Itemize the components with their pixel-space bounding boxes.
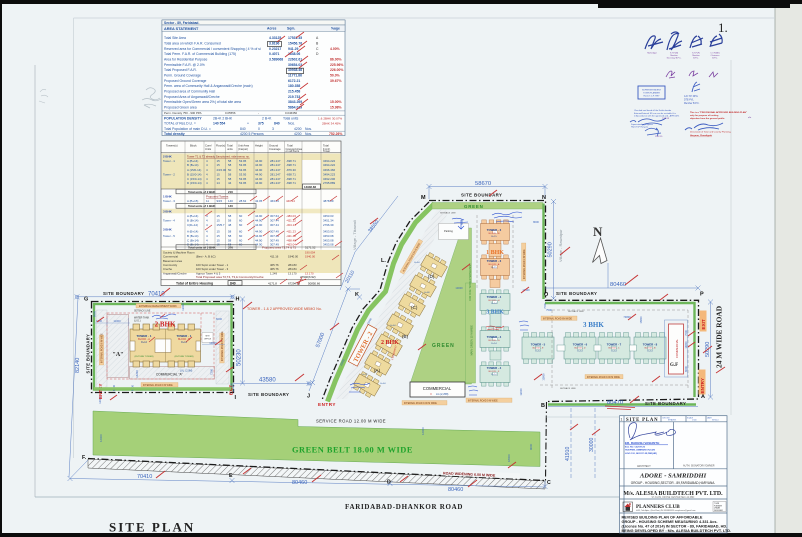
svg-text:1 BHK: 1 BHK	[163, 195, 173, 199]
svg-text:0.046350: 0.046350	[285, 111, 297, 115]
svg-text:Total of Entire Housing: Total of Entire Housing	[176, 281, 213, 285]
svg-text:3453.08: 3453.08	[323, 234, 334, 238]
svg-text:Total units of 2 BHK: Total units of 2 BHK	[188, 190, 216, 194]
svg-text:15: 15	[217, 177, 221, 181]
svg-text:6172.21: 6172.21	[288, 79, 300, 83]
svg-text:TOWER - 3: TOWER - 3	[487, 259, 502, 263]
svg-text:TOWER - 4: TOWER - 4	[487, 366, 502, 370]
svg-text:Floor(s): Floor(s)	[216, 144, 225, 148]
svg-text:53.95: 53.95	[239, 181, 247, 185]
svg-text:0: 0	[258, 127, 260, 131]
svg-text:D+14: D+14	[611, 350, 617, 352]
svg-text:(Besi - A, B &C): (Besi - A, B &C)	[196, 255, 216, 259]
svg-text:82140: 82140	[75, 358, 81, 373]
svg-text:TOWER - 7: TOWER - 7	[607, 343, 622, 347]
svg-text:307.49: 307.49	[270, 230, 279, 234]
svg-text:58: 58	[228, 177, 232, 181]
svg-text:14902.82: 14902.82	[304, 185, 316, 189]
svg-text:44.90: 44.90	[255, 168, 263, 172]
svg-text:5171.52: 5171.52	[305, 246, 316, 250]
svg-text:58: 58	[228, 172, 232, 176]
svg-text:BLOCK - G: BLOCK - G	[488, 340, 499, 342]
svg-text:OFFICE: OFFICE	[204, 339, 212, 341]
svg-text:HQ D.T.C.P. HRY: HQ D.T.C.P. HRY	[643, 96, 660, 98]
svg-text:B.A. NO. CA/97/126: B.A. NO. CA/97/126	[625, 445, 646, 448]
svg-text:A (B+14): A (B+14)	[187, 159, 198, 163]
svg-text:2796.39: 2796.39	[323, 223, 334, 227]
svg-text:M/s. ALESIA BUILDTECH PVT. LTD: M/s. ALESIA BUILDTECH PVT. LTD.	[623, 491, 723, 497]
svg-text:13.170: 13.170	[288, 271, 297, 275]
svg-text:Checked and found all the Koth: Checked and found all the Kothis beside	[634, 109, 672, 112]
svg-text:58: 58	[228, 234, 232, 238]
svg-text:A (B+14): A (B+14)	[187, 230, 198, 234]
svg-text:B (B+14): B (B+14)	[187, 234, 199, 238]
svg-text:O: O	[544, 292, 549, 298]
svg-text:MAIN GREEN 15 M WIDE: MAIN GREEN 15 M WIDE	[470, 325, 474, 356]
svg-text:30938.46: 30938.46	[288, 68, 302, 72]
svg-text:44.90: 44.90	[255, 218, 263, 222]
svg-text:50.0%: 50.0%	[330, 74, 340, 78]
svg-text:SITE BOUNDARY: SITE BOUNDARY	[86, 334, 91, 374]
svg-text:D+14: D+14	[491, 303, 497, 305]
svg-text:Towers(s): Towers(s)	[166, 144, 178, 148]
svg-text:281.247: 281.247	[270, 172, 281, 176]
svg-text:3453.03: 3453.03	[323, 214, 334, 218]
svg-text:TOWER - 4: TOWER - 4	[487, 295, 502, 299]
svg-text:Anganwadi/Creche: Anganwadi/Creche	[163, 271, 187, 275]
svg-text:Proposed Ground Coverage: Proposed Ground Coverage	[164, 79, 207, 83]
svg-text:SITE BOUNDARY: SITE BOUNDARY	[248, 392, 289, 397]
svg-text:INTERNAL ROAD 6 M WIDE: INTERNAL ROAD 6 M WIDE	[221, 331, 224, 361]
svg-text:Perm. Density 750 - 900 PPA: Perm. Density 750 - 900 PPA	[164, 111, 202, 115]
svg-text:0.4071: 0.4071	[269, 52, 279, 56]
svg-text:752.26%: 752.26%	[329, 132, 342, 136]
svg-text:DTE-PVL: DTE-PVL	[684, 99, 694, 101]
svg-text:D+14: D+14	[647, 350, 653, 352]
svg-text:6000: 6000	[684, 366, 688, 372]
svg-text:Tower - 4: Tower - 4	[163, 218, 175, 222]
svg-text:281.247: 281.247	[270, 163, 281, 167]
svg-text:0.05556: 0.05556	[225, 111, 236, 115]
svg-text:53.95: 53.95	[239, 159, 247, 163]
svg-text:15800: 15800	[542, 373, 546, 381]
svg-text:9/15: 9/15	[217, 199, 223, 203]
svg-text:375: 375	[258, 122, 264, 126]
svg-text:-698.71: -698.71	[286, 163, 296, 167]
svg-text:DESIGNER: DESIGNER	[714, 510, 724, 512]
svg-text:objection from the general pub: objection from the general public	[690, 117, 725, 120]
svg-text:AUTH. SIGNATORY/OWNER: AUTH. SIGNATORY/OWNER	[683, 465, 715, 468]
svg-text:SERVICE ROAD 12.00 M WIDE: SERVICE ROAD 12.00 M WIDE	[316, 419, 386, 424]
svg-text:42.05: 42.05	[255, 199, 263, 203]
svg-text:58670: 58670	[475, 181, 491, 187]
svg-text:44.90: 44.90	[255, 234, 263, 238]
svg-text:G+12: G+12	[362, 374, 368, 376]
svg-text:BLOCK - B: BLOCK - B	[489, 233, 500, 235]
svg-text:Proposed Towers: Proposed Towers	[206, 195, 229, 199]
svg-text:B+15: B+15	[491, 236, 497, 238]
svg-text:17531.45: 17531.45	[288, 36, 302, 40]
svg-text:C(D+14): C(D+14)	[187, 223, 198, 227]
svg-text:B (B+14): B (B+14)	[187, 163, 199, 167]
svg-text:39.67%: 39.67%	[330, 79, 342, 83]
svg-text:60: 60	[239, 242, 243, 246]
svg-text:Acres: Acres	[267, 27, 277, 31]
svg-text:H.NO 132, SEC/CF-55,FBD(HR): H.NO 132, SEC/CF-55,FBD(HR)	[625, 453, 657, 455]
svg-text:COMMERCIAL: COMMERCIAL	[675, 339, 679, 358]
svg-text:60: 60	[239, 223, 243, 227]
svg-text:11000: 11000	[113, 319, 121, 323]
svg-text:2 B+K: 2 B+K	[262, 116, 272, 120]
svg-text:COMMERCIAL "A": COMMERCIAL "A"	[156, 373, 183, 377]
svg-text:80470: 80470	[607, 400, 623, 406]
svg-text:8000: 8000	[533, 220, 539, 224]
svg-text:FARIDABAD-DHANKOR ROAD: FARIDABAD-DHANKOR ROAD	[345, 503, 463, 511]
svg-text:4171.8: 4171.8	[268, 281, 277, 285]
svg-text:A (B+14): A (B+14)	[187, 214, 198, 218]
svg-text:3 BHK: 3 BHK	[486, 310, 504, 316]
svg-text:219.733: 219.733	[288, 95, 300, 99]
svg-text:SITE PLAN: SITE PLAN	[626, 418, 658, 423]
svg-text:SUPERINTENDENT: SUPERINTENDENT	[642, 90, 662, 92]
svg-text:Proposed area of Community Hal: Proposed area of Community Hall	[164, 90, 215, 94]
svg-text:+: +	[247, 122, 249, 126]
svg-text:B+15: B+15	[491, 267, 497, 269]
svg-text:2/15.00: 2/15.00	[217, 168, 227, 172]
svg-text:44.90: 44.90	[255, 181, 263, 185]
svg-text:14800: 14800	[684, 341, 688, 349]
svg-text:44.90: 44.90	[255, 214, 263, 218]
svg-text:58: 58	[228, 214, 232, 218]
svg-text:D+14: D+14	[577, 350, 583, 352]
svg-text:GREEN: GREEN	[464, 204, 484, 209]
svg-text:50230: 50230	[237, 349, 243, 366]
svg-text:Perm. Ground Coverage: Perm. Ground Coverage	[164, 74, 201, 78]
svg-text:3496.466: 3496.466	[323, 168, 335, 172]
svg-text:Member B.P.C.: Member B.P.C.	[684, 102, 700, 105]
svg-text:15800: 15800	[639, 316, 643, 324]
svg-text:AREA STATEMENT: AREA STATEMENT	[164, 27, 199, 31]
svg-text:44.90: 44.90	[255, 163, 263, 167]
svg-text:Village - Rawatpur: Village - Rawatpur	[558, 229, 563, 262]
svg-text:307.64: 307.64	[270, 214, 279, 218]
svg-text:-879.30: -879.30	[286, 168, 296, 172]
svg-text:12000: 12000	[519, 388, 523, 396]
svg-text:Perm. area of Community Hall &: Perm. area of Community Hall & Anganwadi…	[164, 84, 253, 88]
svg-text:INTERNAL ROAD 6 M WIDE: INTERNAL ROAD 6 M WIDE	[101, 333, 104, 363]
svg-text:60: 60	[239, 234, 243, 238]
svg-text:11771.86: 11771.86	[288, 74, 302, 78]
svg-text:12000: 12000	[421, 427, 425, 435]
svg-text:840: 840	[240, 127, 246, 131]
svg-text:B.P.C.: B.P.C.	[693, 58, 699, 60]
svg-text:POPULATION DENSITY: POPULATION DENSITY	[164, 116, 202, 120]
svg-text:Village - Tikawali: Village - Tikawali	[352, 220, 357, 250]
svg-text:180.358: 180.358	[288, 84, 300, 88]
svg-text:840: 840	[230, 281, 236, 285]
svg-text:307.49: 307.49	[270, 234, 279, 238]
svg-text:"A": "A"	[113, 352, 124, 358]
svg-text:2B+K 2 BHK: 2B+K 2 BHK	[213, 116, 233, 120]
svg-text:80460: 80460	[292, 480, 307, 486]
svg-text:SETBACK LINE: SETBACK LINE	[134, 310, 151, 313]
svg-text:216: 216	[228, 190, 233, 194]
svg-text:1: 1	[621, 417, 623, 421]
svg-text:Superintending Engineer: Superintending Engineer	[631, 123, 653, 126]
svg-text:G+08: G+08	[424, 292, 430, 294]
svg-text:LG (2,258): LG (2,258)	[436, 392, 449, 396]
svg-text:SITE: SITE	[205, 336, 210, 338]
svg-text:Area for Residential Purpose: Area for Residential Purpose	[164, 58, 207, 62]
svg-text:TOWER - 6: TOWER - 6	[573, 343, 588, 347]
svg-text:Proposed Area of Anganwadi/Cre: Proposed Area of Anganwadi/Creche	[164, 95, 220, 99]
svg-text:Coverage: Coverage	[269, 147, 281, 151]
svg-text:3 BHK: 3 BHK	[583, 321, 604, 329]
svg-text:15: 15	[217, 230, 221, 234]
svg-text:NOV-14: NOV-14	[712, 420, 718, 422]
svg-text:(FUTURE TOWER): (FUTURE TOWER)	[175, 356, 194, 358]
svg-text:3 BHK: 3 BHK	[163, 209, 173, 213]
svg-text:TOTAL of Res.D.U. =: TOTAL of Res.D.U. =	[164, 122, 196, 126]
svg-text:15: 15	[217, 159, 221, 163]
svg-text:4.00%: 4.00%	[330, 47, 340, 51]
svg-text:BLOCK - F: BLOCK - F	[489, 371, 500, 373]
svg-text:Directorate of Town and Countr: Directorate of Town and Country Planning…	[690, 131, 731, 134]
svg-text:Permissible F.A.R. @ 2.0%: Permissible F.A.R. @ 2.0%	[164, 63, 205, 67]
svg-text:281.247: 281.247	[270, 168, 281, 172]
svg-text:INTERNAL ROAD 9.00 M WIDE: INTERNAL ROAD 9.00 M WIDE	[587, 376, 620, 379]
svg-text:140: 140	[228, 204, 233, 208]
svg-text:Total Site Area: Total Site Area	[164, 36, 186, 40]
svg-text:(A): (A)	[374, 368, 381, 373]
svg-text:3453.03: 3453.03	[323, 230, 334, 234]
svg-text:41910: 41910	[565, 446, 571, 461]
svg-text:60: 60	[239, 218, 243, 222]
svg-text:BLOCK - B: BLOCK - B	[645, 348, 656, 350]
svg-text:15: 15	[217, 242, 221, 246]
svg-text:3494.222: 3494.222	[323, 159, 335, 163]
svg-text:L.: L.	[381, 258, 386, 264]
svg-text:4200: 4200	[294, 132, 302, 136]
svg-text:9000: 9000	[529, 443, 533, 450]
svg-text:281.247: 281.247	[270, 159, 281, 163]
svg-text:Nos.: Nos.	[305, 132, 312, 136]
svg-text:TOWER - 5: TOWER - 5	[531, 343, 546, 347]
svg-text:-698.71: -698.71	[286, 177, 296, 181]
svg-text:80460: 80460	[610, 282, 626, 288]
svg-text:N: N	[593, 224, 603, 239]
svg-text:13000: 13000	[455, 286, 463, 290]
svg-text:Total Perm. F.A.R. of Commerci: Total Perm. F.A.R. of Commercial Buildin…	[164, 52, 236, 56]
svg-text:P: P	[700, 292, 704, 298]
svg-text:-304.14: -304.14	[286, 223, 296, 227]
svg-text:SITE BOUNDARY: SITE BOUNDARY	[461, 193, 502, 198]
svg-text:GROUP - HOUSING,SECTOR - 89,FA: GROUP - HOUSING,SECTOR - 89,FARIDABAD,HA…	[631, 481, 716, 485]
svg-text:2 BHK: 2 BHK	[163, 154, 173, 158]
svg-text:INTERNAL ROAD 9 M WIDE: INTERNAL ROAD 9 M WIDE	[143, 384, 173, 387]
svg-text:Tower - 2: Tower - 2	[163, 172, 175, 176]
svg-text:(B): (B)	[402, 334, 409, 339]
svg-text:ER. RAKESH VASHISTH: ER. RAKESH VASHISTH	[625, 441, 659, 445]
svg-text:53.95: 53.95	[239, 177, 247, 181]
svg-text:53.95: 53.95	[239, 163, 247, 167]
svg-text:15: 15	[217, 163, 221, 167]
svg-text:58: 58	[228, 163, 232, 167]
svg-text:GREEN: GREEN	[432, 343, 455, 349]
svg-text:G: G	[84, 297, 88, 303]
svg-text:A (15/0-14): A (15/0-14)	[187, 168, 201, 172]
svg-text:INTERNAL ROAD 6M WIDE: INTERNAL ROAD 6M WIDE	[543, 317, 572, 320]
svg-text:D+14: D+14	[535, 350, 541, 352]
svg-text:11: 11	[206, 199, 209, 203]
svg-text:140 554: 140 554	[213, 122, 225, 126]
svg-text:3451.34: 3451.34	[323, 218, 334, 222]
svg-text:Parking: Parking	[444, 229, 453, 233]
svg-text:G+04: G+04	[414, 262, 420, 264]
svg-text:3843.269: 3843.269	[288, 100, 302, 104]
svg-text:1 & 2BHK 30.07%: 1 & 2BHK 30.07%	[318, 116, 343, 120]
svg-text:7500: 7500	[543, 303, 547, 309]
svg-text:12000: 12000	[99, 434, 103, 442]
svg-text:Block: Block	[190, 144, 197, 148]
svg-text:58: 58	[228, 159, 232, 163]
svg-text:-421.48: -421.48	[286, 234, 296, 238]
svg-text:H-35, Tele-Apts., (First Floor: H-35, Tele-Apts., (First Floor) Ph.99998…	[636, 509, 696, 512]
svg-text:60: 60	[239, 214, 243, 218]
svg-text:58: 58	[228, 230, 232, 234]
svg-text:Total area on which F.A.R. Con: Total area on which F.A.R. Consumed	[164, 42, 221, 46]
svg-text:F.: F.	[82, 455, 87, 461]
svg-text:G+04: G+04	[390, 325, 396, 327]
svg-text:EXTERNAL DEVELOPMENT WORK: EXTERNAL DEVELOPMENT WORK	[139, 305, 177, 308]
svg-text:REVISED BUILDING PLAN OF AFFOR: REVISED BUILDING PLAN OF AFFORDABLE	[622, 515, 703, 519]
svg-text:D+14: D+14	[141, 341, 147, 344]
svg-text:226.00%: 226.00%	[330, 68, 343, 72]
svg-text:ADORE - SAMRIDDHI: ADORE - SAMRIDDHI	[639, 473, 707, 480]
svg-text:43580: 43580	[259, 378, 276, 384]
svg-text:3.589068: 3.589068	[269, 58, 283, 62]
svg-text:Nos.: Nos.	[288, 122, 295, 126]
svg-text:1940.00: 1940.00	[288, 255, 299, 259]
svg-text:1940.00: 1940.00	[305, 255, 316, 259]
svg-text:97-34-89, OZONE CENTER,SEC-12,: 97-34-89, OZONE CENTER,SEC-12,FBD	[652, 497, 695, 499]
svg-text:SITE BOUNDARY: SITE BOUNDARY	[645, 401, 686, 406]
svg-text:2 BHK: 2 BHK	[381, 340, 399, 346]
svg-text:SITE BOUNDARY: SITE BOUNDARY	[103, 291, 144, 296]
svg-text:Proposed area T3,T4 & T5: Proposed area T3,T4 & T5	[262, 246, 297, 250]
svg-text:Tower T1 & T2 already Sanction: Tower T1 & T2 already Sanctioned. vide m…	[187, 154, 250, 158]
svg-text:Height: Height	[255, 144, 263, 148]
svg-text:1:500: 1:500	[692, 420, 697, 422]
svg-text:BEING DEVELOPED BY : M/s. ALES: BEING DEVELOPED BY : M/s. ALESIA BUILDTE…	[622, 529, 732, 533]
svg-text:86.00%: 86.00%	[330, 58, 342, 62]
svg-text:(C): (C)	[411, 305, 418, 310]
svg-text:G+04: G+04	[380, 383, 386, 385]
svg-text:4200 5 Persons: 4200 5 Persons	[240, 132, 264, 136]
svg-text:Tower - 1: Tower - 1	[163, 159, 175, 163]
svg-text:281.247: 281.247	[270, 177, 281, 181]
svg-text:281.247: 281.247	[270, 181, 281, 185]
svg-text:A.D.T.P. DPG: A.D.T.P. DPG	[684, 95, 698, 98]
svg-text:30000: 30000	[589, 437, 595, 452]
svg-text:SETBACK LINE: SETBACK LINE	[568, 310, 584, 313]
svg-text:(U.G.): (U.G.)	[134, 319, 141, 322]
svg-text:53.95: 53.95	[239, 172, 247, 176]
svg-text:Tower - 3: Tower - 3	[163, 199, 175, 203]
svg-text:Sqm.: Sqm.	[287, 27, 295, 31]
svg-text:Total Proposed F.A.R.: Total Proposed F.A.R.	[164, 68, 197, 72]
svg-text:TOWN PLANNER: TOWN PLANNER	[643, 92, 660, 95]
svg-text:0.23217: 0.23217	[269, 47, 281, 51]
svg-text:15.98%: 15.98%	[330, 106, 342, 110]
svg-text:ARCHITECT: ARCHITECT	[637, 465, 651, 468]
svg-text:D: D	[387, 480, 391, 486]
svg-text:A (B+15): A (B+15)	[187, 199, 198, 203]
svg-text:44.90: 44.90	[255, 230, 263, 234]
svg-text:BLOCK - A: BLOCK - A	[489, 263, 500, 266]
svg-text:3492.206: 3492.206	[323, 177, 335, 181]
svg-text:3494.223: 3494.223	[323, 172, 335, 176]
svg-text:-698.71: -698.71	[286, 181, 296, 185]
svg-text:-: -	[258, 111, 259, 115]
svg-text:14200: 14200	[135, 370, 139, 378]
svg-text:44.90: 44.90	[255, 223, 263, 227]
svg-text:B (15/0-14): B (15/0-14)	[187, 172, 201, 176]
svg-text:in Accordance with the approve: in Accordance with the approved and - AP…	[634, 115, 680, 118]
svg-text:%age: %age	[331, 27, 340, 31]
svg-text:15: 15	[217, 218, 221, 222]
svg-text:Total units of 3 BHK: Total units of 3 BHK	[188, 246, 216, 250]
svg-text:411.16: 411.16	[270, 255, 279, 259]
svg-text:2795.889: 2795.889	[323, 181, 335, 185]
svg-text:7/11/13: 7/11/13	[662, 118, 670, 120]
svg-text:3453.08: 3453.08	[323, 242, 334, 246]
svg-text:376: 376	[228, 246, 233, 250]
svg-text:6000: 6000	[216, 317, 222, 321]
svg-text:FOR FIRE TENDER MOVEMENT: FOR FIRE TENDER MOVEMENT	[469, 263, 472, 301]
svg-text:INTERNAL ROAD 9 M WIDE: INTERNAL ROAD 9 M WIDE	[468, 399, 498, 402]
svg-text:Haryana, Chandigarh: Haryana, Chandigarh	[690, 135, 713, 137]
svg-text:-483.03: -483.03	[286, 214, 296, 218]
svg-text:SETBACK LINE: SETBACK LINE	[440, 212, 456, 215]
svg-text:140: 140	[228, 199, 233, 203]
svg-text:LVL. (2.0M): LVL. (2.0M)	[180, 370, 193, 373]
svg-text:(Carpet): (Carpet)	[238, 147, 248, 151]
svg-text:(FUTURE TOWER): (FUTURE TOWER)	[135, 356, 154, 358]
svg-text:units: units	[227, 147, 233, 151]
svg-text:TOWER - 8: TOWER - 8	[643, 343, 658, 347]
svg-text:Total Population of main D.U.: Total Population of main D.U. =	[164, 127, 211, 131]
svg-text:BLOCK - C: BLOCK - C	[609, 348, 620, 350]
svg-text:TOWER - 1 & 2 APPROVED WIDE ME: TOWER - 1 & 2 APPROVED WIDE MEMO No.	[247, 307, 322, 311]
svg-text:48: 48	[228, 223, 232, 227]
svg-text:44.90: 44.90	[255, 159, 263, 163]
svg-text:941.29: 941.29	[288, 47, 298, 51]
svg-text:15: 15	[217, 214, 221, 218]
svg-text:3: 3	[272, 127, 274, 131]
svg-text:225.96%: 225.96%	[330, 63, 343, 67]
svg-text:BLOCK - H: BLOCK - H	[489, 300, 500, 302]
svg-text:D+14: D+14	[491, 343, 497, 345]
svg-text:7500: 7500	[684, 330, 688, 336]
svg-text:SETBACK LINE: SETBACK LINE	[560, 387, 576, 390]
svg-text:27940(6.92): 27940(6.92)	[300, 275, 316, 279]
svg-text:30654.03: 30654.03	[288, 63, 302, 67]
svg-text:440.14: 440.14	[286, 199, 295, 203]
svg-text:Proposed Green area: Proposed Green area	[164, 106, 197, 110]
svg-text:Total units of 1 BHK: Total units of 1 BHK	[188, 204, 216, 208]
svg-text:SP/ADH/1: SP/ADH/1	[668, 419, 676, 422]
